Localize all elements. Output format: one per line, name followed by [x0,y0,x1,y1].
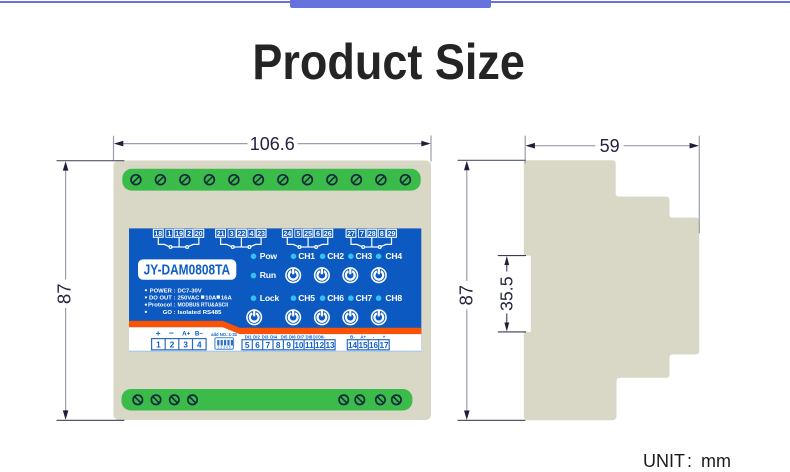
svg-text:CH2: CH2 [327,251,344,261]
svg-text:8: 8 [380,231,384,238]
svg-text:DI5: DI5 [281,335,288,340]
svg-text:CH3: CH3 [356,251,373,261]
svg-text:DI3: DI3 [262,335,269,340]
svg-text:2: 2 [187,231,191,238]
svg-text:+: + [383,335,386,340]
svg-text:13: 13 [325,341,335,350]
svg-text:19: 19 [175,231,183,238]
svg-text:CH5: CH5 [298,293,315,303]
svg-text:24: 24 [283,231,291,238]
svg-text:DI2: DI2 [253,335,260,340]
svg-text:35.5: 35.5 [496,276,516,311]
svg-text:CH6: CH6 [327,293,344,303]
svg-text:+: + [156,328,161,338]
svg-text:CH4: CH4 [385,251,402,261]
svg-text:87: 87 [54,283,75,304]
svg-text:9: 9 [286,341,291,350]
svg-text:DI1: DI1 [245,335,252,340]
svg-text:106.6: 106.6 [250,134,295,154]
svg-text:2: 2 [170,341,175,350]
svg-text:16: 16 [369,341,379,350]
svg-text:DC7-30V: DC7-30V [178,288,202,294]
svg-text:25: 25 [304,231,312,238]
svg-text:22: 22 [238,231,246,238]
svg-text:5: 5 [245,341,250,350]
svg-text:6: 6 [316,231,320,238]
svg-text:20: 20 [195,231,203,238]
svg-text:15: 15 [358,341,368,350]
svg-text:MODBUS RTU&ASCII: MODBUS RTU&ASCII [178,303,229,309]
svg-text:6: 6 [255,341,260,350]
svg-text:1 2 3 4 5: 1 2 3 4 5 [218,345,231,349]
svg-text:JY-DAM0808TA: JY-DAM0808TA [144,262,231,279]
svg-text:10: 10 [294,341,304,350]
svg-text:3: 3 [230,231,234,238]
svg-text:250VAC: 250VAC [178,296,201,302]
svg-text:DI6: DI6 [289,335,296,340]
svg-text:B−: B− [195,330,204,337]
svg-text:A+: A+ [182,330,191,337]
svg-text:DO OUT :: DO OUT : [149,296,176,302]
svg-text:Lock: Lock [260,293,280,303]
svg-text:CH1: CH1 [298,251,315,261]
svg-text:Run: Run [260,270,276,280]
svg-text:DCOM-: DCOM- [313,335,325,340]
svg-text:7: 7 [266,341,271,350]
svg-text:4: 4 [249,231,253,238]
svg-text:A+: A+ [360,335,366,340]
svg-text:1: 1 [167,231,171,238]
svg-text:DI7: DI7 [297,335,304,340]
svg-text:4: 4 [197,341,202,350]
svg-text:−: − [169,328,174,338]
svg-text:add NO.:1-32: add NO.:1-32 [211,332,237,337]
svg-text:28: 28 [368,231,376,238]
svg-text:5: 5 [296,231,300,238]
svg-text:11: 11 [305,341,314,350]
svg-text:1: 1 [156,341,161,350]
svg-text:3: 3 [183,341,188,350]
svg-text:CH7: CH7 [356,293,373,303]
svg-text:Pow: Pow [260,251,278,261]
svg-text:GO :: GO : [163,310,176,316]
svg-text:87: 87 [455,285,476,306]
svg-text:18: 18 [154,231,162,238]
svg-text:29: 29 [388,231,396,238]
svg-text:POWER :: POWER : [150,288,176,294]
svg-text:17: 17 [379,341,389,350]
svg-text:26: 26 [324,231,332,238]
svg-text:CH8: CH8 [385,293,402,303]
svg-text:16A: 16A [221,296,233,302]
svg-text:DI8: DI8 [305,335,312,340]
svg-text:23: 23 [257,231,265,238]
svg-text:8: 8 [276,341,281,350]
svg-text:DI4: DI4 [270,335,277,340]
svg-text:10A: 10A [205,296,217,302]
svg-text:Protocol :: Protocol : [148,303,176,309]
svg-text:14: 14 [348,341,358,350]
svg-text:Isolated RS485: Isolated RS485 [178,310,223,316]
svg-text:27: 27 [347,231,355,238]
svg-text:B-: B- [350,335,355,340]
svg-text:7: 7 [360,231,364,238]
svg-text:59: 59 [600,136,620,156]
svg-text:12: 12 [315,341,325,350]
svg-text:21: 21 [217,231,225,238]
